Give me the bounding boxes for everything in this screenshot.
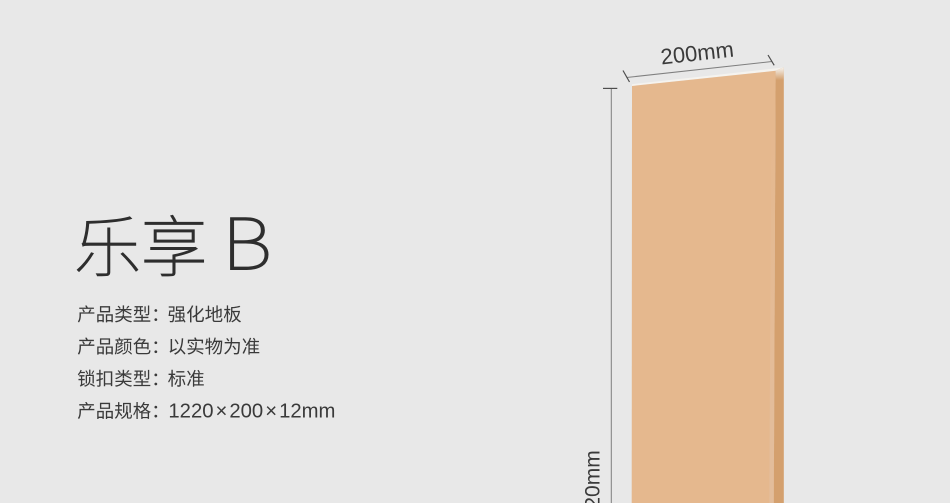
- svg-text:1220×200×12mm: 1220×200×12mm: [168, 401, 335, 423]
- svg-text:1220mm: 1220mm: [582, 450, 605, 503]
